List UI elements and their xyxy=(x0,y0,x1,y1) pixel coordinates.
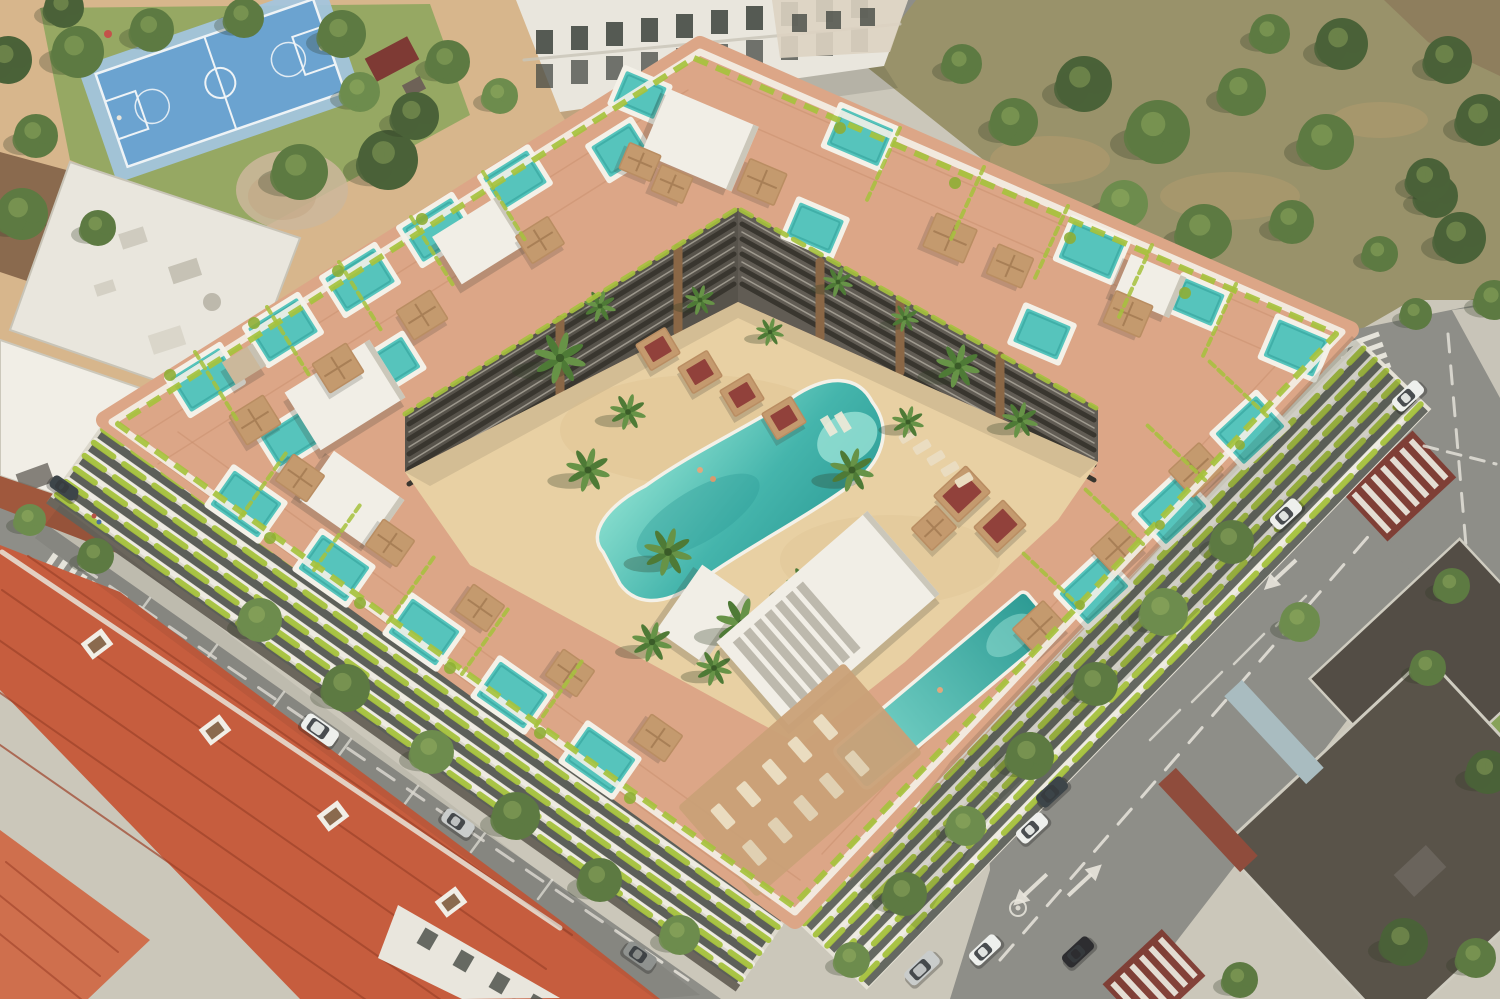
palm-crown xyxy=(584,466,591,473)
tree-highlight xyxy=(1151,597,1169,615)
palm-crown xyxy=(905,419,910,424)
tree-highlight xyxy=(1418,657,1432,671)
r xyxy=(746,6,763,30)
tree-highlight xyxy=(402,101,420,119)
tree-highlight xyxy=(1370,243,1384,257)
tree-highlight xyxy=(1001,107,1019,125)
tree-highlight xyxy=(248,606,265,623)
c xyxy=(834,122,846,134)
tree-highlight xyxy=(1111,189,1129,207)
swimmer xyxy=(937,687,943,693)
tree-highlight xyxy=(951,51,966,66)
r xyxy=(571,60,588,84)
palm-crown xyxy=(556,354,564,362)
c xyxy=(1064,232,1076,244)
tree-highlight xyxy=(1289,609,1304,624)
tree-highlight xyxy=(1189,214,1210,235)
r xyxy=(826,11,841,29)
c xyxy=(1179,287,1191,299)
pedestrian xyxy=(92,514,97,519)
swimmer xyxy=(697,467,703,473)
r xyxy=(711,10,728,34)
tree-highlight xyxy=(420,738,437,755)
palm-crown xyxy=(836,280,841,285)
tree-highlight xyxy=(1391,927,1409,945)
c xyxy=(416,213,428,225)
tree-highlight xyxy=(349,79,364,94)
playground-item xyxy=(104,30,112,38)
tree-highlight xyxy=(436,48,453,65)
r xyxy=(606,22,623,46)
tree-highlight xyxy=(1311,124,1332,145)
tree-highlight xyxy=(285,154,306,175)
palm-crown xyxy=(1017,417,1023,423)
palm-crown xyxy=(954,362,961,369)
tree-highlight xyxy=(1141,112,1165,136)
tree-highlight xyxy=(333,673,351,691)
c xyxy=(1155,520,1165,530)
tree-highlight xyxy=(329,19,347,37)
tree-highlight xyxy=(86,545,100,559)
tree-highlight xyxy=(1442,575,1456,589)
c xyxy=(1075,600,1085,610)
c xyxy=(444,662,456,674)
palm-crown xyxy=(903,316,907,320)
palm-crown xyxy=(698,298,703,303)
tree-highlight xyxy=(88,217,102,231)
palm-crown xyxy=(711,665,717,671)
tree-highlight xyxy=(1435,45,1453,63)
aerial-render: Aerial render of a residential apartment… xyxy=(0,0,1500,999)
tree-highlight xyxy=(1220,528,1237,545)
tree-highlight xyxy=(24,122,41,139)
palm-crown xyxy=(625,409,631,415)
tree-highlight xyxy=(1017,741,1035,759)
tree-highlight xyxy=(372,141,395,164)
tree-highlight xyxy=(842,949,856,963)
tree-highlight xyxy=(1465,945,1480,960)
symbol-dot xyxy=(1016,906,1021,911)
tree-highlight xyxy=(22,510,34,522)
tree-highlight xyxy=(1416,166,1433,183)
tree-highlight xyxy=(669,922,684,937)
c xyxy=(624,792,636,804)
tree-highlight xyxy=(1408,304,1420,316)
c xyxy=(332,265,344,277)
roof-unit xyxy=(203,293,221,311)
pedestrian xyxy=(97,520,102,525)
tree-highlight xyxy=(1328,28,1348,48)
tree-highlight xyxy=(588,866,605,883)
r xyxy=(860,8,875,26)
palm-crown xyxy=(664,548,672,556)
r xyxy=(676,14,693,38)
palm-crown xyxy=(597,303,602,308)
palm-crown xyxy=(848,466,855,473)
c xyxy=(534,727,546,739)
tree-highlight xyxy=(140,16,157,33)
swimmer xyxy=(710,476,716,482)
tree-highlight xyxy=(1069,66,1090,87)
tree-highlight xyxy=(1476,758,1493,775)
c xyxy=(1235,440,1245,450)
tree-highlight xyxy=(1446,222,1466,242)
r xyxy=(571,26,588,50)
tree-highlight xyxy=(1280,208,1297,225)
tree-highlight xyxy=(1084,670,1101,687)
tree-highlight xyxy=(1259,21,1274,36)
tree-highlight xyxy=(1483,287,1498,302)
tree-highlight xyxy=(955,813,970,828)
aerial-render-canvas: Aerial render of a residential apartment… xyxy=(0,0,1500,999)
palm-crown xyxy=(768,330,772,334)
r xyxy=(536,64,553,88)
c xyxy=(164,369,176,381)
r xyxy=(536,30,553,54)
tree-highlight xyxy=(503,801,521,819)
c xyxy=(949,177,961,189)
tree-highlight xyxy=(8,198,28,218)
palm-crown xyxy=(649,639,655,645)
r xyxy=(641,18,658,42)
tree-highlight xyxy=(1230,969,1244,983)
tree-highlight xyxy=(1229,77,1247,95)
r xyxy=(792,14,807,32)
tree-highlight xyxy=(1468,104,1488,124)
tree-highlight xyxy=(233,5,248,20)
c xyxy=(248,317,260,329)
tree-highlight xyxy=(64,36,84,56)
c xyxy=(264,532,276,544)
c xyxy=(354,597,366,609)
tree-highlight xyxy=(893,880,910,897)
tree-highlight xyxy=(490,85,504,99)
